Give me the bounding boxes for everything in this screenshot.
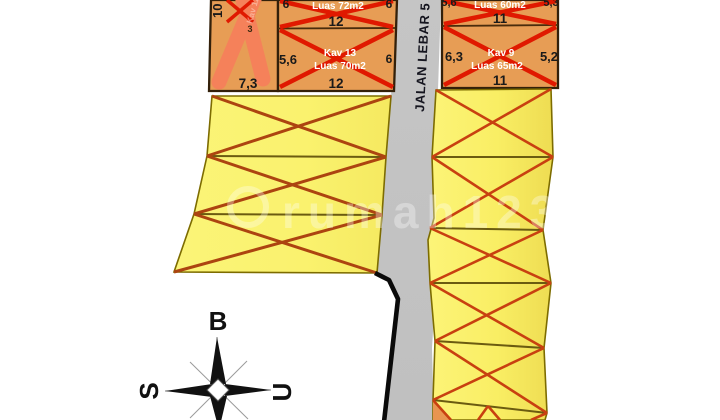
svg-text:S: S [134, 382, 164, 399]
svg-text:rumah123: rumah123 [282, 186, 563, 238]
svg-text:Luas 72m2: Luas 72m2 [312, 1, 364, 12]
svg-text:Kav 13: Kav 13 [324, 48, 357, 59]
svg-text:Luas 60m2: Luas 60m2 [474, 0, 526, 11]
svg-text:6,3: 6,3 [445, 49, 463, 64]
svg-text:5,3: 5,3 [543, 0, 558, 9]
svg-text:10: 10 [210, 4, 225, 18]
svg-text:5,6: 5,6 [279, 52, 297, 67]
svg-text:11: 11 [493, 73, 508, 88]
svg-text:U: U [267, 383, 297, 402]
svg-text:Luas 70m2: Luas 70m2 [314, 61, 366, 72]
svg-text:5,6: 5,6 [441, 0, 456, 9]
svg-text:B: B [209, 306, 228, 336]
svg-text:Kav 9: Kav 9 [488, 48, 515, 59]
svg-text:6: 6 [386, 0, 393, 11]
svg-text:3: 3 [247, 24, 252, 34]
svg-text:6: 6 [283, 0, 290, 11]
svg-text:11: 11 [493, 11, 508, 26]
svg-text:7,3: 7,3 [239, 76, 258, 91]
svg-text:Luas 65m2: Luas 65m2 [471, 61, 523, 72]
svg-text:12: 12 [328, 14, 343, 29]
svg-text:5,2: 5,2 [540, 49, 558, 64]
svg-text:12: 12 [328, 76, 343, 91]
svg-text:6: 6 [386, 52, 393, 66]
